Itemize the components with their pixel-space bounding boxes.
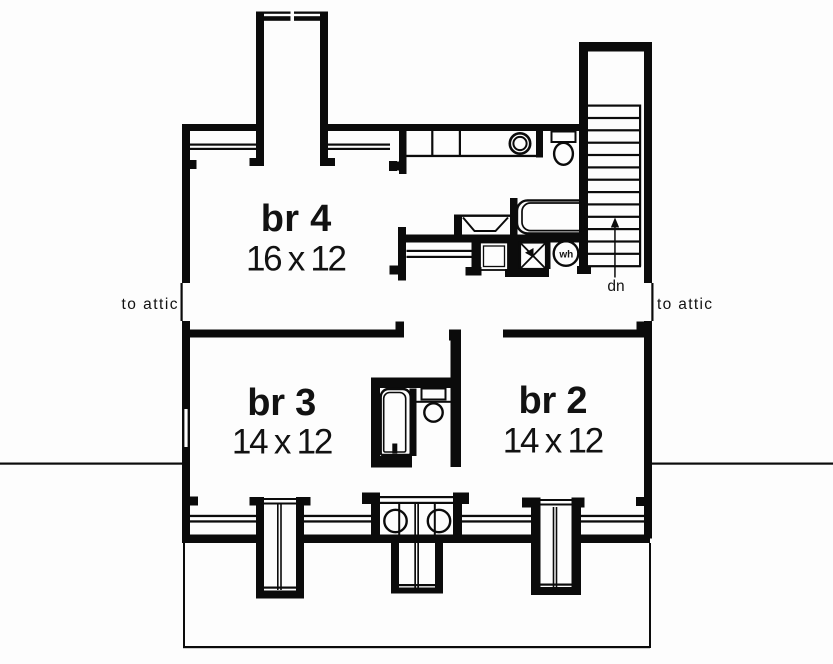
svg-text:wh: wh xyxy=(558,250,573,261)
svg-text:16 x 12: 16 x 12 xyxy=(246,240,347,279)
svg-text:dn: dn xyxy=(607,278,624,295)
svg-text:to attic: to attic xyxy=(657,296,712,313)
svg-text:br 4: br 4 xyxy=(261,198,332,240)
svg-text:br 2: br 2 xyxy=(519,380,588,422)
svg-text:br 3: br 3 xyxy=(247,382,316,424)
svg-text:to attic: to attic xyxy=(122,296,178,313)
svg-text:14 x 12: 14 x 12 xyxy=(232,423,334,462)
svg-text:14 x 12: 14 x 12 xyxy=(503,421,604,460)
